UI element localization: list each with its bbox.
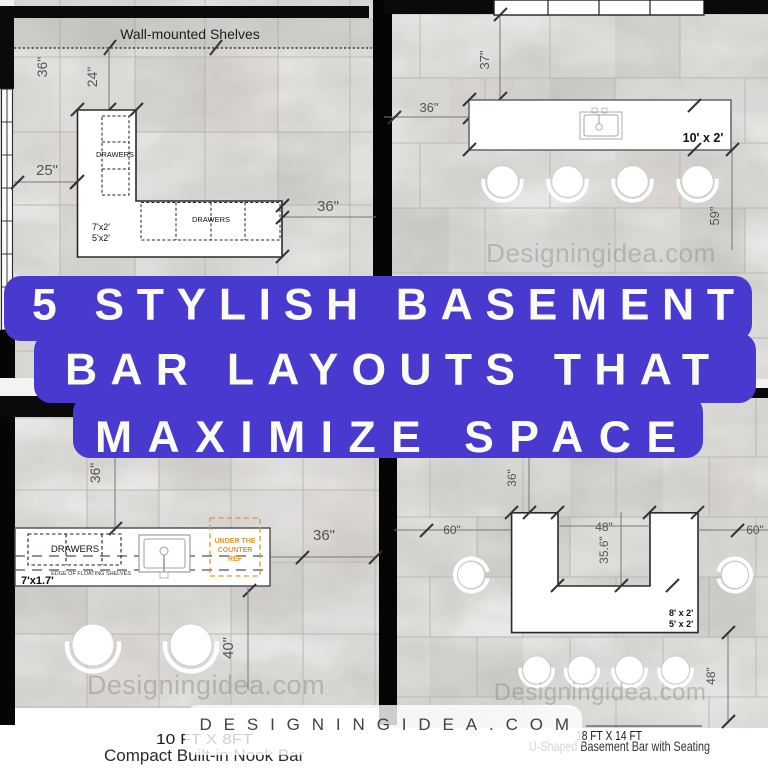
svg-text:36": 36"	[87, 463, 103, 484]
svg-text:5 STYLISH BASEMENT: 5 STYLISH BASEMENT	[32, 281, 734, 330]
svg-text:48": 48"	[595, 520, 613, 534]
svg-text:COUNTER: COUNTER	[218, 547, 253, 554]
svg-text:37": 37"	[477, 50, 492, 69]
svg-text:Designingidea.com: Designingidea.com	[494, 679, 707, 706]
svg-text:REF: REF	[228, 556, 243, 563]
svg-text:25": 25"	[36, 162, 58, 179]
svg-text:7'x1.7': 7'x1.7'	[21, 575, 54, 587]
svg-text:59": 59"	[707, 206, 722, 225]
svg-text:DESIGNINGIDEA.COM: DESIGNINGIDEA.COM	[200, 715, 570, 734]
svg-text:Designingidea.com: Designingidea.com	[87, 670, 325, 700]
svg-text:36": 36"	[419, 100, 438, 115]
svg-text:DRAWERS: DRAWERS	[192, 215, 230, 224]
svg-text:8' x 2': 8' x 2'	[669, 608, 693, 618]
svg-text:5'x2': 5'x2'	[92, 233, 110, 243]
svg-text:10' x 2': 10' x 2'	[683, 131, 724, 145]
svg-text:40": 40"	[220, 637, 237, 659]
svg-text:36": 36"	[313, 527, 335, 544]
svg-text:EDGE OF FLOATING SHELVES: EDGE OF FLOATING SHELVES	[51, 571, 131, 577]
svg-text:7'x2': 7'x2'	[92, 222, 110, 232]
svg-text:DRAWERS: DRAWERS	[96, 150, 134, 159]
svg-text:35.6": 35.6"	[597, 536, 611, 564]
svg-text:60": 60"	[443, 523, 461, 537]
svg-text:5' x 2': 5' x 2'	[669, 619, 693, 629]
svg-text:Designingidea.com: Designingidea.com	[486, 238, 716, 268]
svg-text:24": 24"	[84, 67, 100, 88]
svg-text:60": 60"	[746, 523, 764, 537]
svg-text:Wall-mounted Shelves: Wall-mounted Shelves	[120, 26, 260, 42]
svg-text:36": 36"	[505, 469, 519, 487]
svg-text:UNDER THE: UNDER THE	[215, 538, 256, 545]
svg-text:DRAWERS: DRAWERS	[51, 544, 99, 555]
svg-text:36": 36"	[317, 198, 339, 215]
svg-text:36": 36"	[34, 57, 50, 78]
